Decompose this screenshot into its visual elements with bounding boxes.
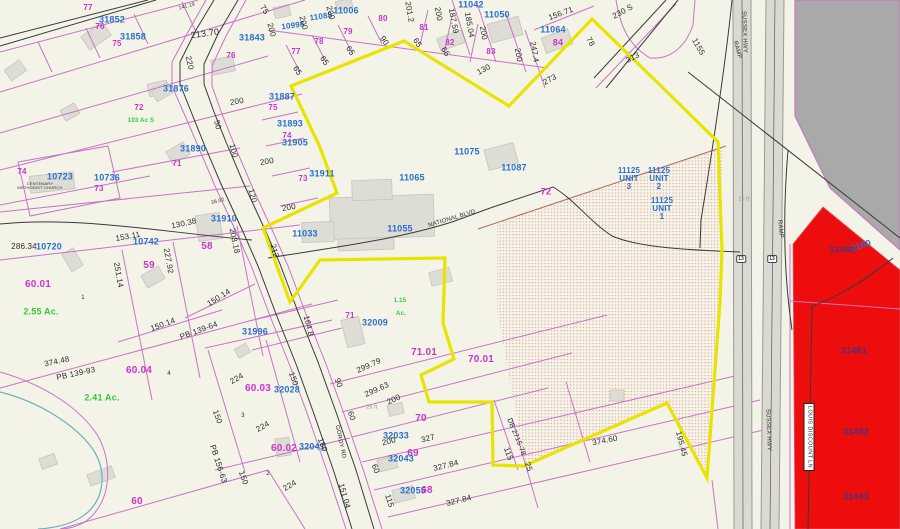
map-canvas (0, 0, 900, 529)
parcel-map[interactable]: 7731852763185875141.19213.70318437622075… (0, 0, 900, 529)
